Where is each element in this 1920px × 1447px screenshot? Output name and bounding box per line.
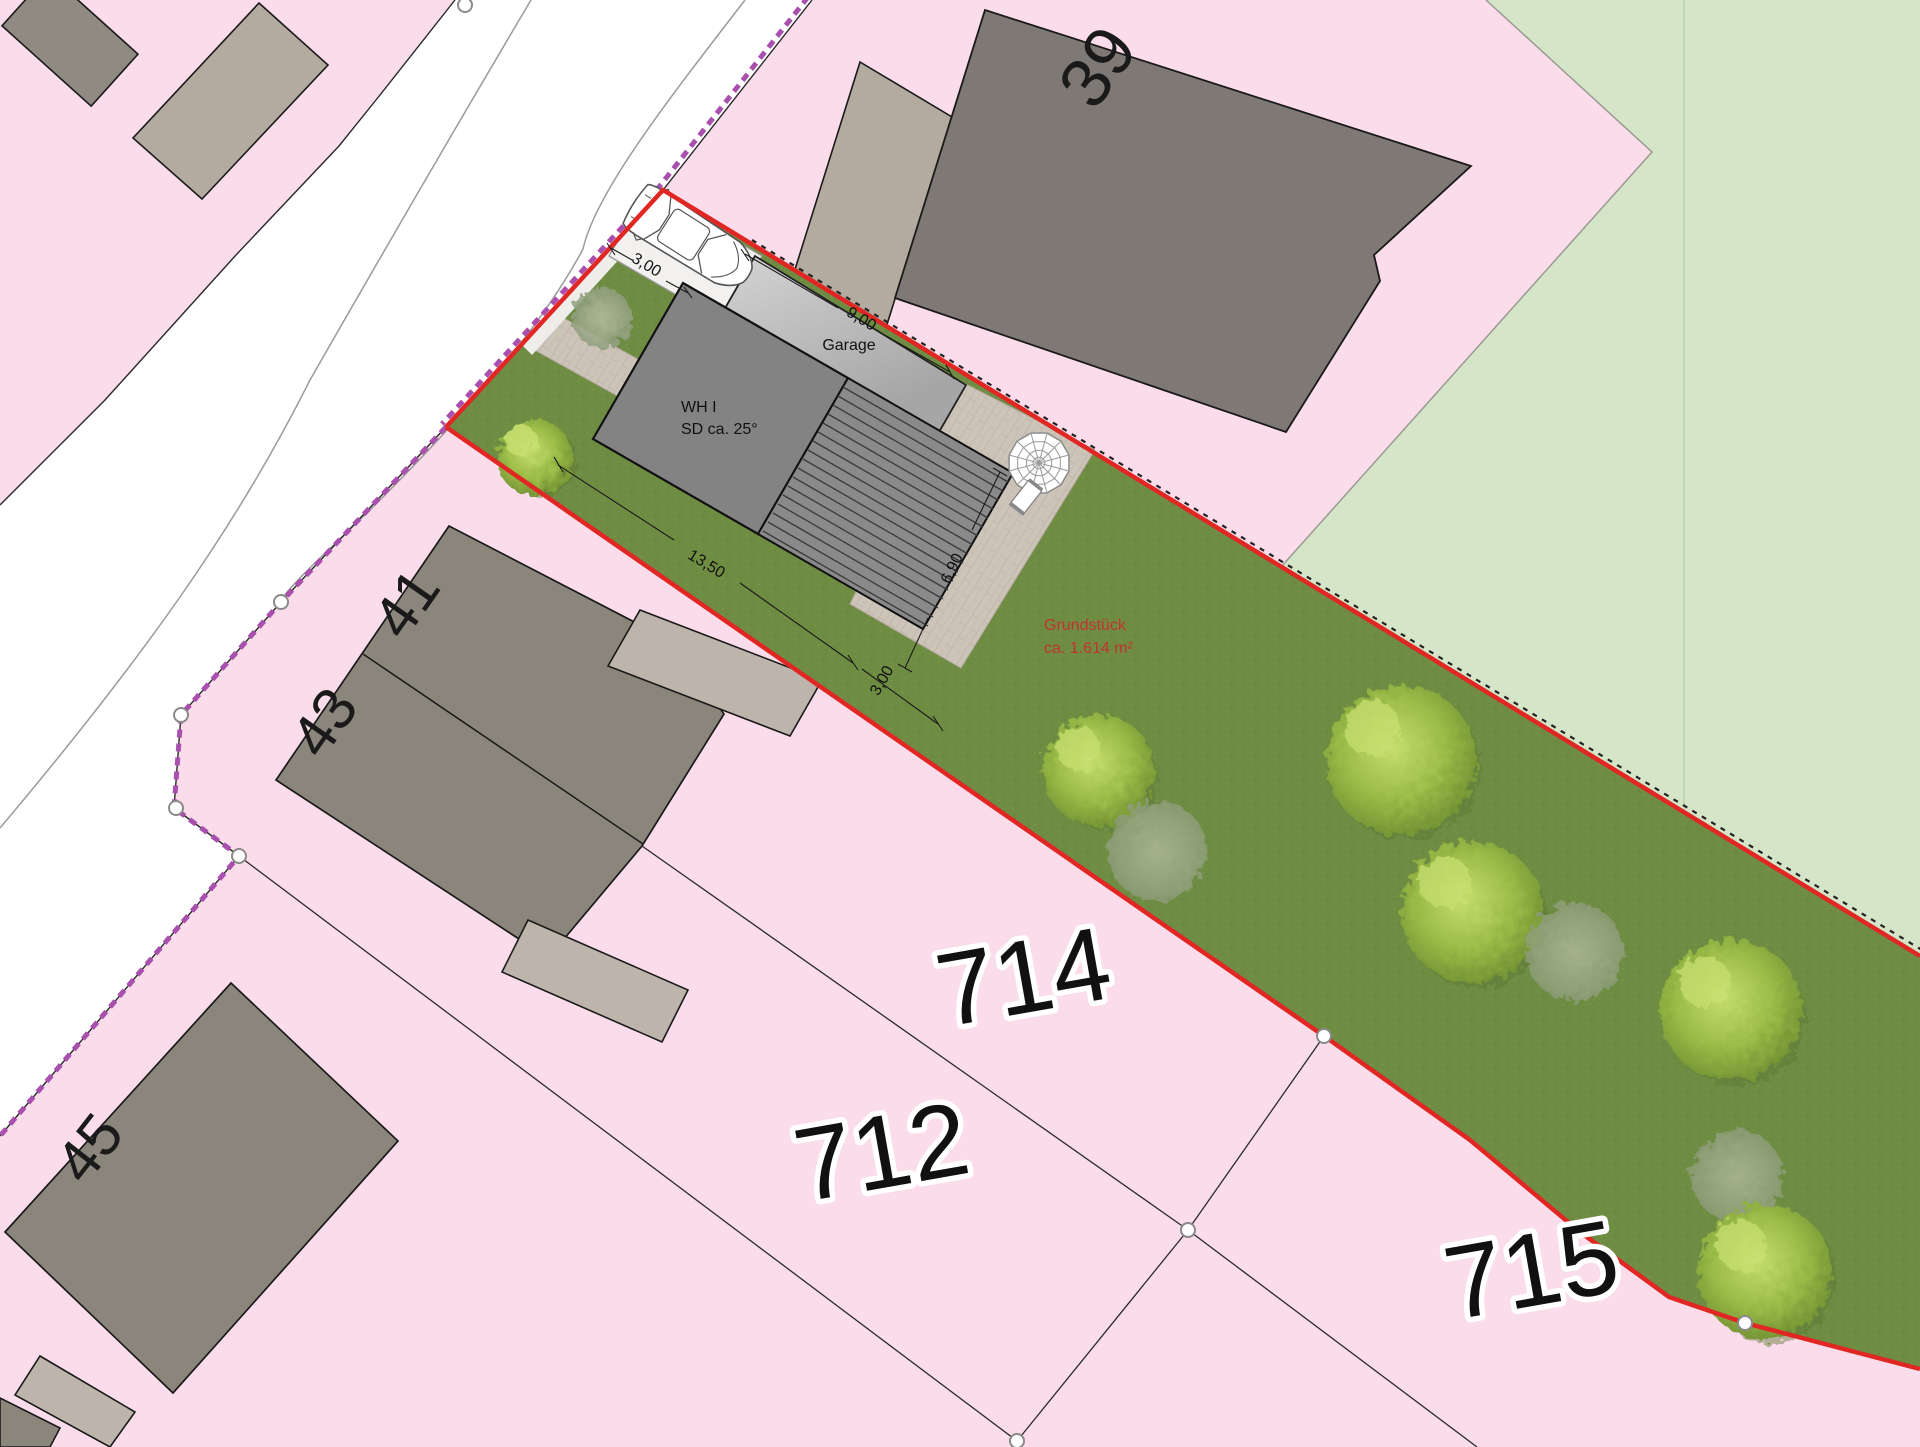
svg-text:Grundstück: Grundstück	[1044, 617, 1127, 634]
svg-text:WH I: WH I	[681, 399, 717, 416]
svg-text:ca. 1.614 m²: ca. 1.614 m²	[1044, 640, 1134, 657]
svg-text:Garage: Garage	[822, 337, 875, 354]
svg-text:SD ca. 25°: SD ca. 25°	[681, 421, 758, 438]
